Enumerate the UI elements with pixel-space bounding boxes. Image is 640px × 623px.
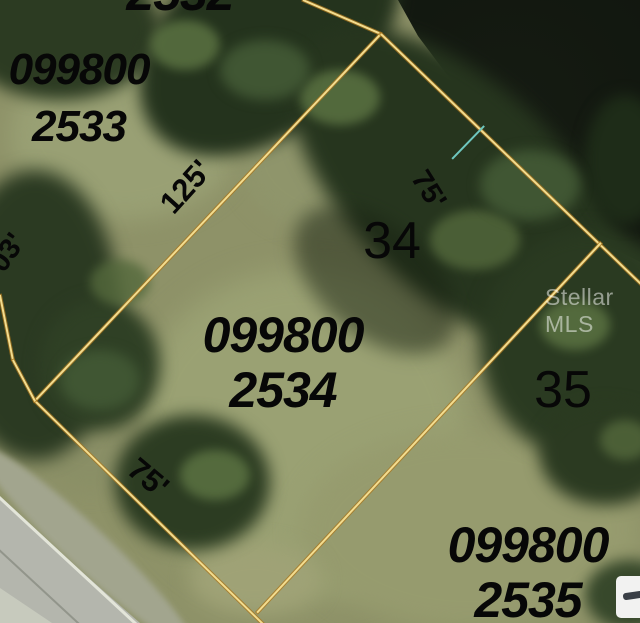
stellar-mls-watermark: Stellar MLS (545, 284, 640, 338)
parcel-id-2534: 099800 2534 (203, 308, 364, 418)
parcel-id-partial-top: 2532 (126, 0, 233, 18)
aerial-parcel-map: 2532 099800 2533 099800 2534 099800 2535… (0, 0, 640, 623)
foliage-highlight (430, 210, 520, 270)
foliage-highlight (180, 450, 250, 500)
foliage-highlight (90, 260, 150, 305)
parcel-id-2534-line1: 099800 (203, 308, 364, 363)
parcel-id-2535-line1: 099800 (448, 518, 609, 573)
parcel-id-2535-line2: 2535 (448, 573, 609, 623)
parcel-id-2533: 099800 2533 (9, 41, 150, 155)
parcel-id-2535: 099800 2535 (448, 518, 609, 623)
parcel-id-2533-line1: 099800 (9, 41, 150, 98)
foliage-highlight (150, 20, 220, 70)
foliage-midtone (220, 40, 310, 100)
parcel-id-2533-line2: 2533 (9, 98, 150, 155)
watermark-logo-box (616, 576, 640, 618)
lot-number-34: 34 (363, 211, 421, 271)
lot-number-35: 35 (534, 360, 592, 420)
parcel-id-2534-line2: 2534 (203, 363, 364, 418)
watermark-logo-glyph (623, 591, 640, 601)
